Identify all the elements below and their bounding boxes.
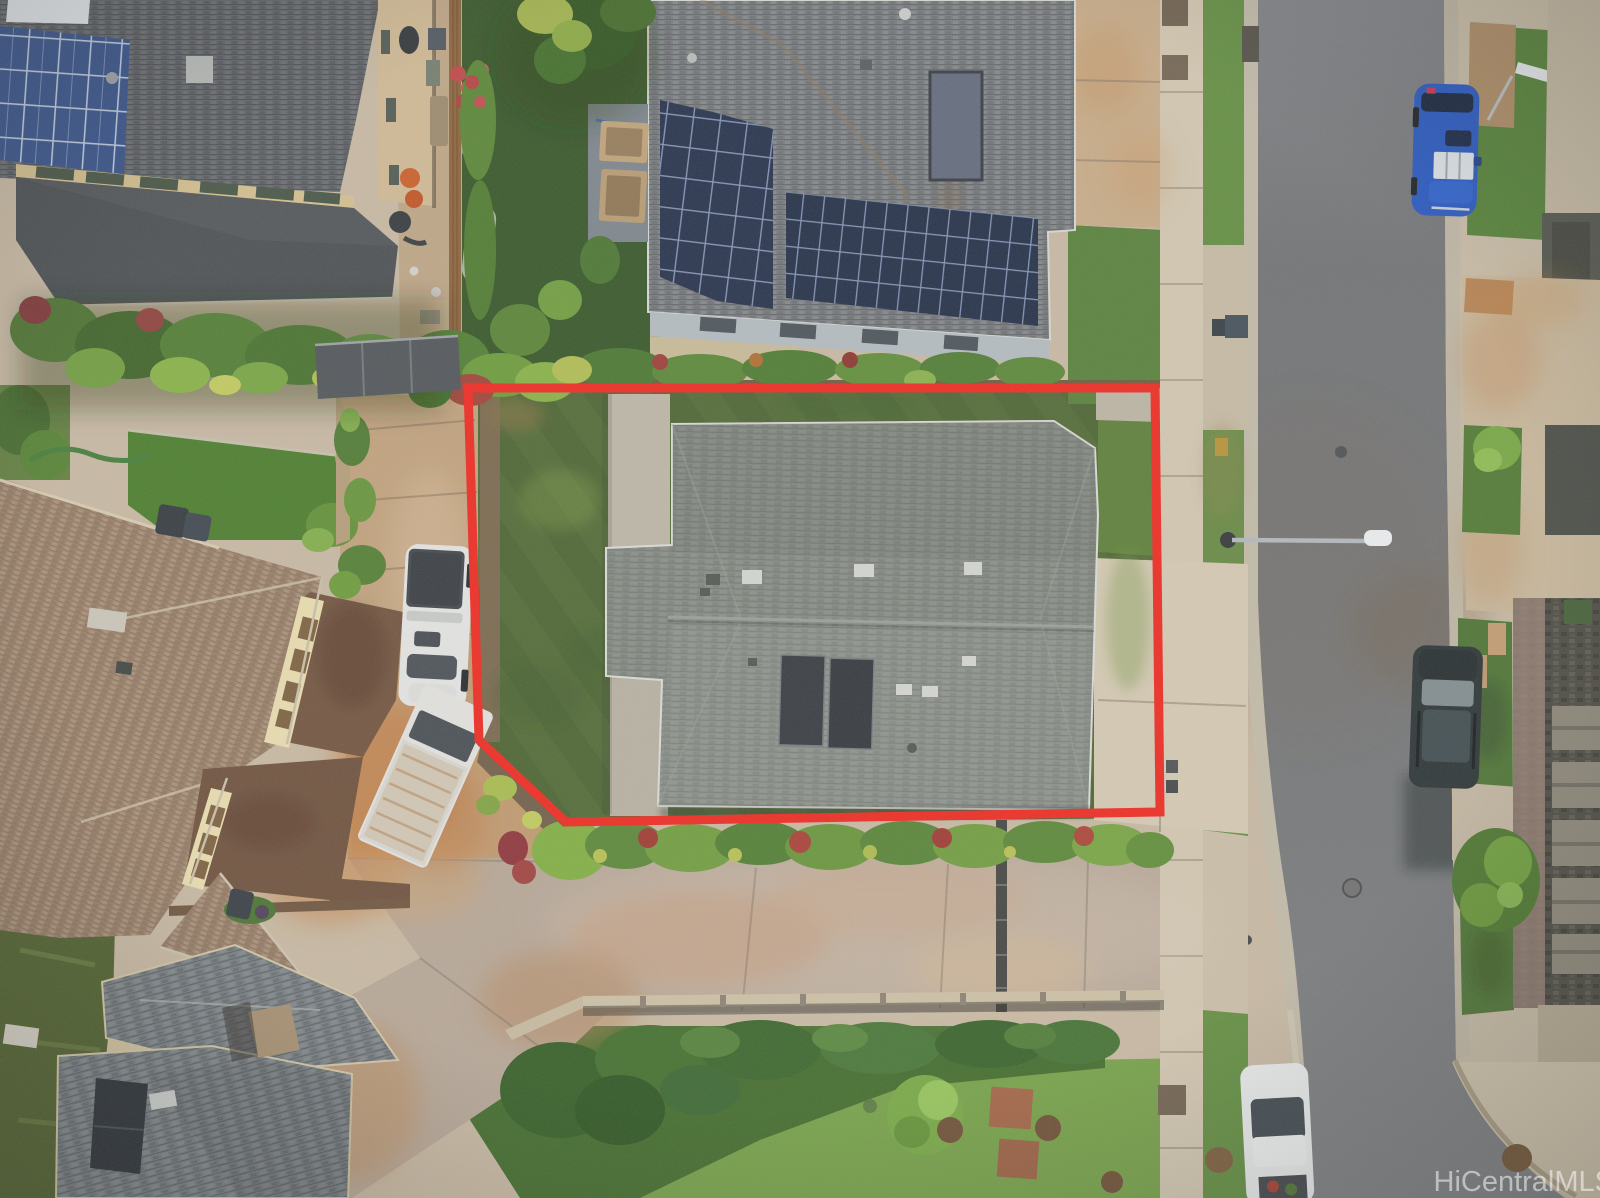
svg-text:HiCentralMLS: HiCentralMLS [1434, 1166, 1600, 1198]
